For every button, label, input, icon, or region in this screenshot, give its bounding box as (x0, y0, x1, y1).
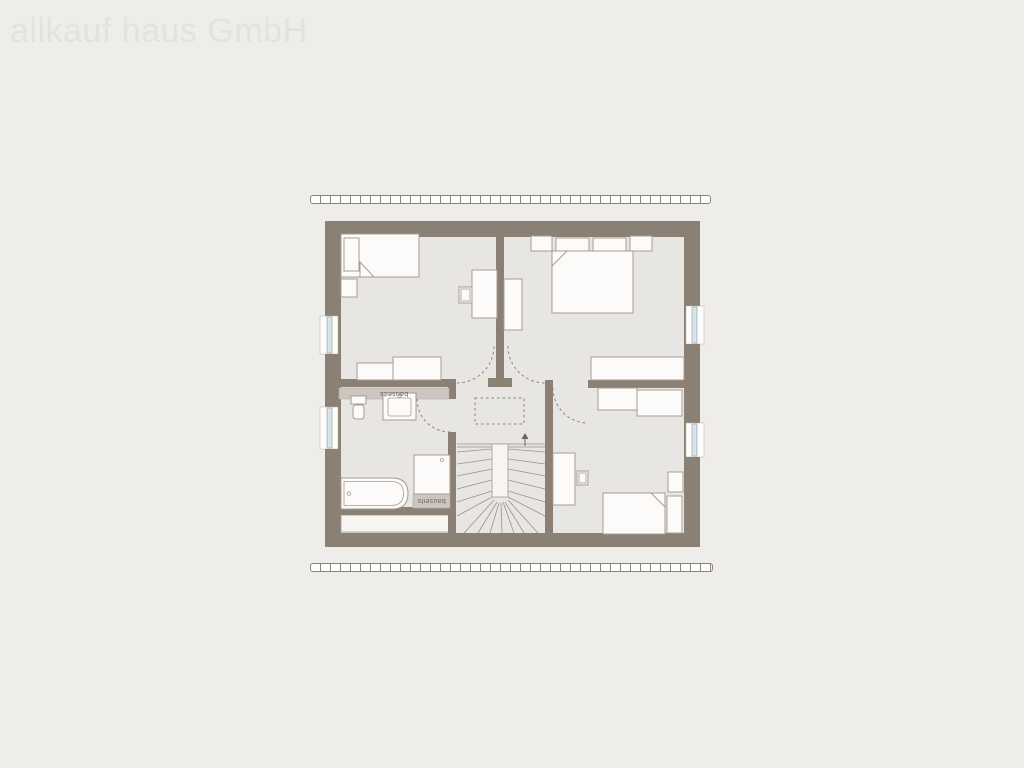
knee-wall-niche (341, 515, 450, 532)
desk (553, 453, 575, 505)
nightstand (630, 236, 652, 251)
cabinet (637, 390, 682, 416)
drain-icon (347, 492, 351, 496)
chair-seat (461, 289, 470, 301)
nightstand (341, 279, 357, 297)
pillow (667, 496, 682, 533)
nightstand (531, 236, 552, 251)
bathtub-inner (344, 482, 404, 506)
pillow (344, 238, 359, 271)
nightstand (668, 472, 683, 492)
single-bed (603, 493, 665, 534)
sideboard (393, 357, 441, 380)
shower-note-label: bauseits (413, 494, 450, 508)
shower (414, 455, 450, 494)
washbasin-bowl (388, 398, 411, 416)
wall-stair-east (545, 380, 553, 533)
window-left-top (320, 312, 341, 358)
wall-cap-hall (488, 378, 512, 387)
wc-bowl (353, 405, 364, 419)
knee-wall-note-label: bauseits (339, 388, 449, 399)
sideboard (357, 363, 393, 380)
cabinet (598, 388, 637, 410)
double-bed (552, 251, 633, 313)
chair-seat (579, 473, 586, 483)
pillow (556, 238, 589, 252)
sideboard (591, 357, 684, 380)
shower-head-icon (441, 459, 444, 462)
stair-well (492, 444, 508, 497)
pillow (593, 238, 626, 252)
window-left-bottom (320, 403, 341, 453)
floor-plan-canvas (0, 0, 1024, 768)
desk (472, 270, 497, 318)
window-right-bottom (684, 419, 704, 461)
wall-bedroom-br-north (588, 380, 684, 388)
window-right-top (684, 302, 704, 348)
wardrobe (504, 279, 522, 330)
